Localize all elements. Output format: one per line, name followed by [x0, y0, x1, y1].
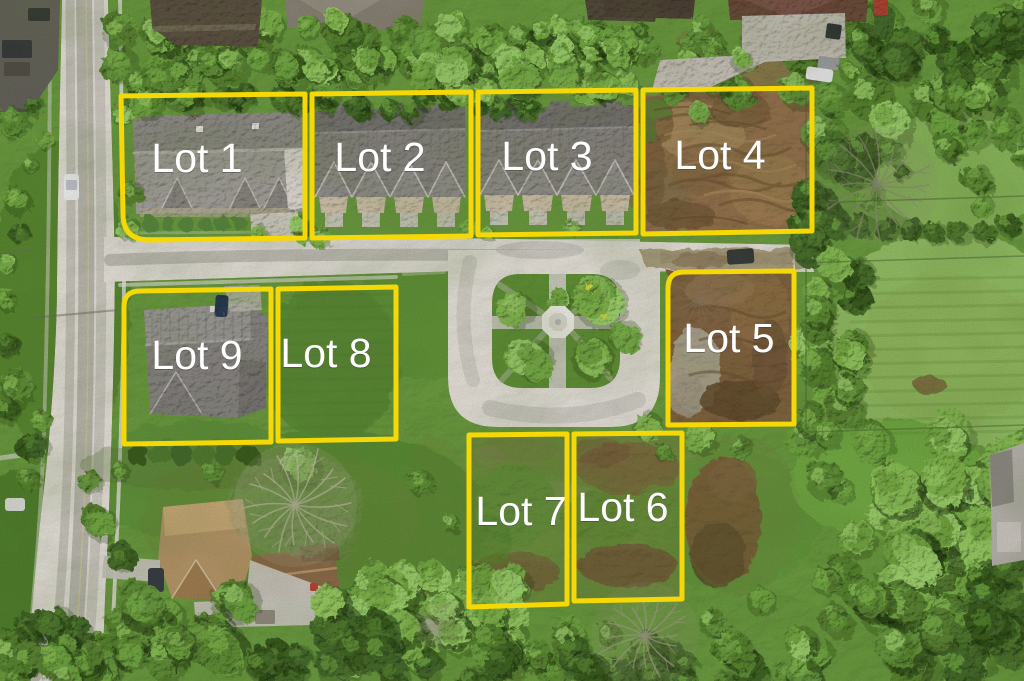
svg-text:Lot 3: Lot 3 — [501, 133, 592, 179]
svg-text:Lot 1: Lot 1 — [151, 135, 242, 181]
svg-text:Lot 4: Lot 4 — [674, 132, 765, 178]
svg-text:Lot 8: Lot 8 — [280, 330, 371, 376]
svg-text:Lot 9: Lot 9 — [151, 332, 242, 378]
svg-text:Lot 2: Lot 2 — [334, 134, 425, 180]
svg-text:Lot 6: Lot 6 — [577, 484, 668, 530]
svg-text:Lot 5: Lot 5 — [683, 315, 774, 361]
svg-text:Lot 7: Lot 7 — [475, 488, 566, 534]
